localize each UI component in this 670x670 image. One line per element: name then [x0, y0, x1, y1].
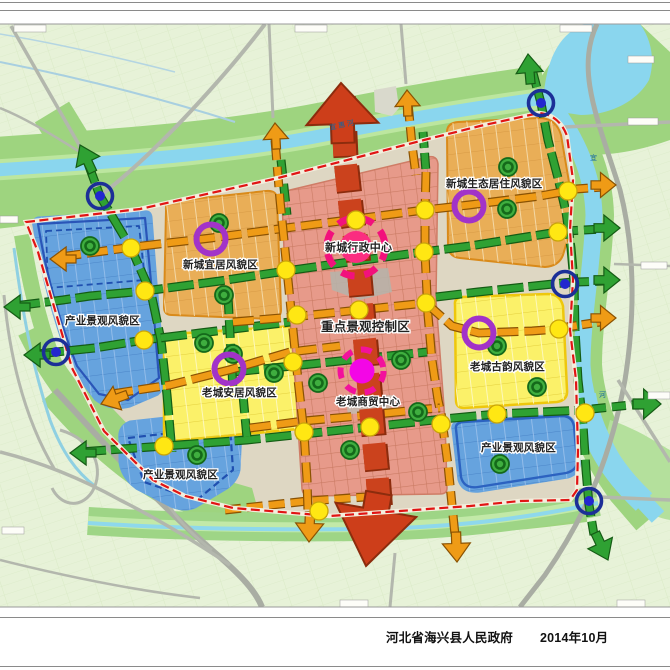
svg-text:老城商贸中心: 老城商贸中心 — [335, 395, 400, 408]
svg-text:老城古韵风貌区: 老城古韵风貌区 — [469, 360, 545, 373]
svg-text:产业景观风貌区: 产业景观风貌区 — [143, 468, 218, 481]
svg-text:产业景观风貌区: 产业景观风貌区 — [481, 441, 556, 454]
svg-text:宜: 宜 — [590, 153, 597, 162]
svg-text:产业景观风貌区: 产业景观风貌区 — [65, 314, 140, 327]
svg-text:新城生态居住风貌区: 新城生态居住风貌区 — [446, 177, 543, 190]
svg-text:重点景观控制区: 重点景观控制区 — [321, 319, 410, 334]
svg-text:新城行政中心: 新城行政中心 — [325, 240, 392, 254]
svg-text:2014年10月: 2014年10月 — [540, 630, 608, 645]
svg-text:河北省海兴县人民政府: 河北省海兴县人民政府 — [386, 630, 513, 645]
svg-text:老城安居风貌区: 老城安居风貌区 — [201, 386, 277, 399]
svg-text:河: 河 — [599, 391, 606, 399]
svg-text:新城宜居风貌区: 新城宜居风貌区 — [183, 258, 258, 271]
